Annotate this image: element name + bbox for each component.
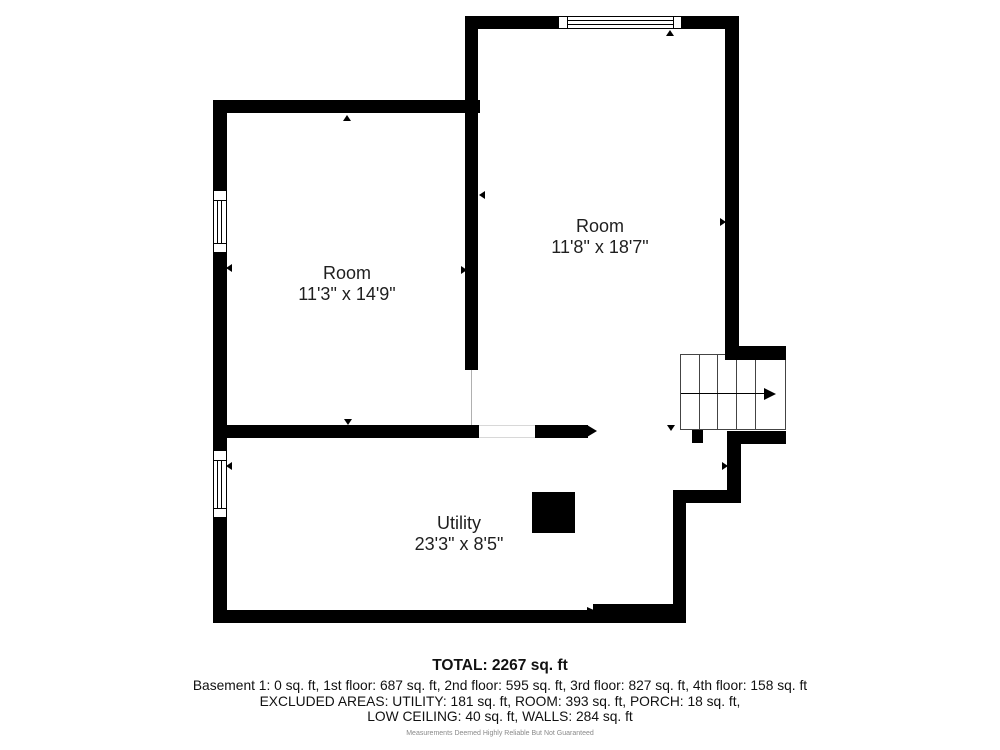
window-top-frame xyxy=(558,16,682,29)
wall-opening-line xyxy=(471,370,472,425)
door-opening-edge-top xyxy=(479,425,535,426)
measure-arrow-down-right-room xyxy=(667,425,675,431)
window-left-upper-pane-line xyxy=(221,200,222,243)
room-label-right: Room 11'8" x 18'7" xyxy=(551,216,648,258)
measure-arrow-left-utility xyxy=(226,462,232,470)
window-top-pane-line xyxy=(567,20,674,21)
stair-tread-line xyxy=(699,354,700,430)
wall-end-arrowhead-bottom xyxy=(587,607,596,615)
wall-left-mid xyxy=(213,253,227,450)
window-top-pane-line xyxy=(567,24,674,25)
wall-left-upper xyxy=(213,100,227,190)
room-label-left: Room 11'3" x 14'9" xyxy=(298,263,395,305)
stair-direction-line xyxy=(681,393,764,394)
wall-stairwell-top xyxy=(725,346,786,360)
measure-arrow-up-left-room xyxy=(343,115,351,121)
room-dimensions: 11'3" x 14'9" xyxy=(298,284,395,305)
area-summary: TOTAL: 2267 sq. ft Basement 1: 0 sq. ft,… xyxy=(0,657,1000,738)
wall-stairwell-bottom xyxy=(727,431,786,444)
total-area: TOTAL: 2267 sq. ft xyxy=(0,657,1000,675)
measure-arrow-down-left-room xyxy=(344,419,352,425)
measure-arrow-right-utility xyxy=(722,462,728,470)
measure-arrow-left-left-room xyxy=(226,264,232,272)
wall-right xyxy=(725,16,739,360)
floor-areas: Basement 1: 0 sq. ft, 1st floor: 687 sq.… xyxy=(0,678,1000,694)
room-dimensions: 23'3" x 8'5" xyxy=(415,534,504,555)
window-left-upper-separator xyxy=(213,200,227,201)
stair-tread-line xyxy=(736,354,737,430)
measure-arrow-right-left-room xyxy=(461,266,467,274)
room-label-utility: Utility 23'3" x 8'5" xyxy=(415,513,504,555)
room-dimensions: 11'8" x 18'7" xyxy=(551,237,648,258)
wall-end-arrowhead-divider xyxy=(587,425,597,437)
stair-direction-arrowhead xyxy=(764,388,776,400)
wall-stair-tab xyxy=(692,430,703,443)
wall-top-left-room xyxy=(213,100,480,113)
chimney-block xyxy=(532,492,575,533)
excluded-areas-line1: EXCLUDED AREAS: UTILITY: 181 sq. ft, ROO… xyxy=(0,694,1000,710)
disclaimer: Measurements Deemed Highly Reliable But … xyxy=(0,729,1000,738)
door-opening-edge-bottom xyxy=(479,437,535,438)
wall-right-lower xyxy=(673,490,686,623)
window-left-lower-pane-line xyxy=(221,460,222,508)
window-left-lower-pane-line xyxy=(217,460,218,508)
wall-divider-left xyxy=(213,425,479,438)
stair-tread-line xyxy=(717,354,718,430)
window-left-upper-separator xyxy=(213,243,227,244)
wall-bottom-step xyxy=(593,604,673,612)
measure-arrow-right-right-room xyxy=(720,218,726,226)
floor-plan: Room 11'3" x 14'9" Room 11'8" x 18'7" Ut… xyxy=(0,0,1000,750)
room-name: Room xyxy=(551,216,648,237)
window-left-lower-separator xyxy=(213,508,227,509)
window-top-separator-left xyxy=(567,16,568,29)
wall-divider-right xyxy=(535,425,588,438)
window-left-upper-pane-line xyxy=(217,200,218,243)
room-name: Room xyxy=(298,263,395,284)
window-top-separator-right xyxy=(673,16,674,29)
measure-arrow-up-right-room xyxy=(666,30,674,36)
wall-top-right-room-left xyxy=(465,16,558,29)
excluded-areas-line2: LOW CEILING: 40 sq. ft, WALLS: 284 sq. f… xyxy=(0,709,1000,725)
wall-left-lower xyxy=(213,518,227,623)
stair-tread-line xyxy=(755,354,756,430)
room-name: Utility xyxy=(415,513,504,534)
measure-arrow-left-right-room xyxy=(479,191,485,199)
window-left-lower-separator xyxy=(213,460,227,461)
wall-middle-vertical xyxy=(465,16,478,370)
